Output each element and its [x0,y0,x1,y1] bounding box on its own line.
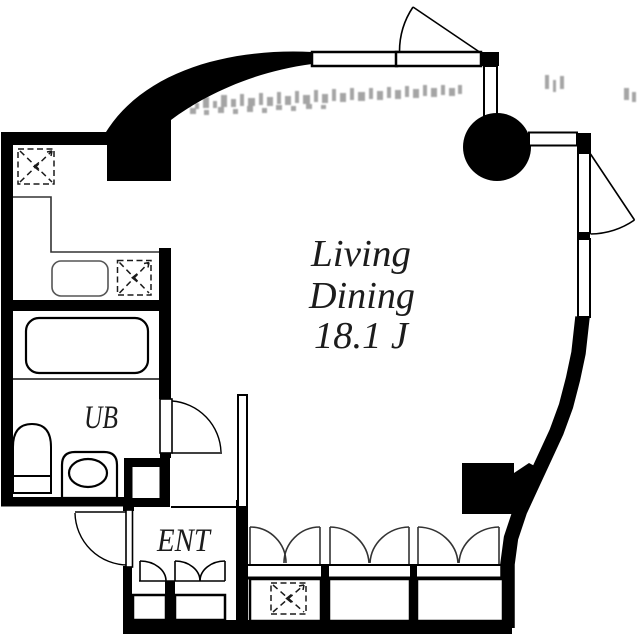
svg-text:Living: Living [310,233,411,275]
svg-text:Dining: Dining [308,275,415,317]
svg-text:UB: UB [84,400,118,436]
svg-text:18.1 J: 18.1 J [314,315,410,357]
svg-text:ENT: ENT [156,523,212,559]
